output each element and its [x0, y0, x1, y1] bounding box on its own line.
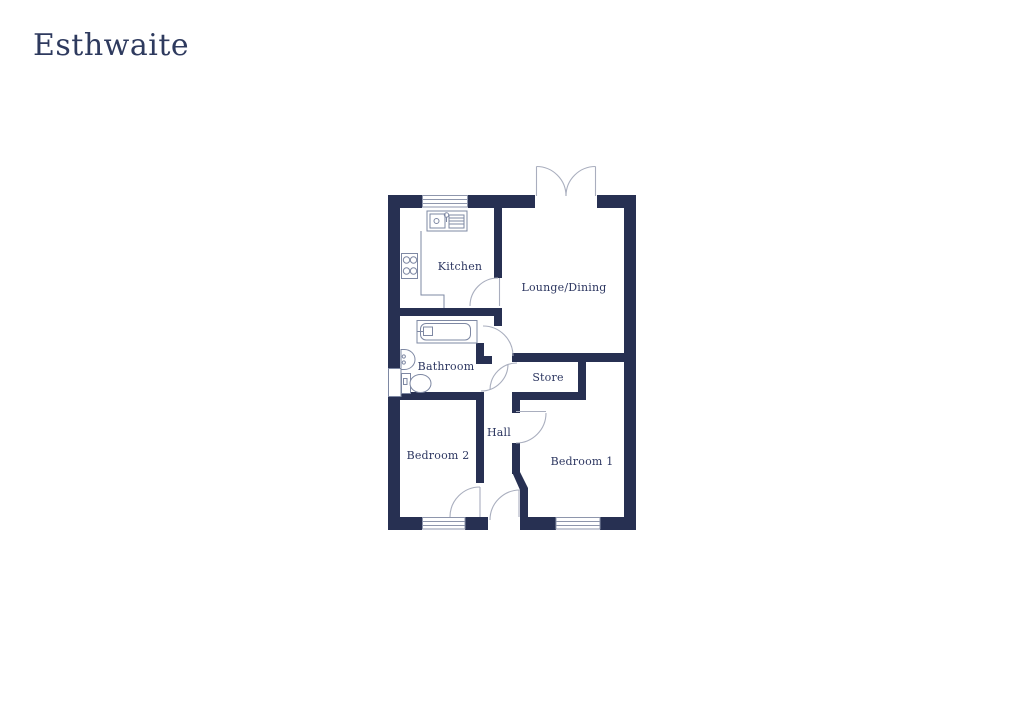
wall-segment [476, 400, 484, 483]
bedroom2-door [450, 487, 480, 517]
wall-segment [512, 353, 624, 362]
front-door [490, 490, 520, 520]
wall-segment [400, 308, 502, 316]
door-swing-arc [483, 326, 513, 356]
wall-segment [494, 308, 502, 326]
wall-segment [520, 517, 556, 530]
wall-segment [465, 517, 488, 530]
wall-segment [494, 208, 502, 278]
service-notch [389, 369, 402, 397]
wall-segment [512, 392, 586, 400]
room-label-bedroom-1: Bedroom 1 [551, 455, 614, 468]
hob-icon [402, 254, 418, 279]
store-door [490, 363, 517, 390]
lounge-door [483, 326, 513, 356]
bedroom1-door [516, 412, 546, 444]
wall-segment [468, 195, 535, 208]
door-swing-arc [566, 167, 596, 197]
door-swing-arc [537, 167, 567, 197]
room-label-lounge-dining: Lounge/Dining [521, 281, 606, 294]
room-label-store: Store [532, 371, 563, 384]
room-label-hall: Hall [487, 426, 511, 439]
door-swing-arc [470, 278, 498, 306]
wall-segment [388, 195, 400, 368]
bedroom1-window [556, 518, 600, 530]
kitchen-door [470, 278, 500, 306]
door-swing-arc [450, 487, 480, 517]
wall-segment [600, 517, 636, 530]
kitchen-window [423, 196, 468, 208]
floorplan-canvas: Kitchen Lounge/Dining Bathroom Store Hal… [0, 0, 1024, 724]
wall-segment [624, 195, 636, 530]
page: Esthwaite [0, 0, 1024, 724]
wall-segment [400, 392, 484, 400]
bath-icon [417, 321, 477, 344]
bathroom-door [481, 364, 508, 391]
room-label-bedroom-2: Bedroom 2 [407, 449, 470, 462]
wall-segment [476, 356, 492, 364]
door-swing-arc [481, 364, 508, 391]
basin-icon [401, 350, 415, 370]
door-swing-arc [490, 363, 517, 390]
wall-segment [512, 472, 528, 517]
room-label-bathroom: Bathroom [418, 360, 475, 373]
wall-segment [388, 396, 400, 530]
wall-segment [512, 392, 520, 413]
door-swing-arc [516, 413, 546, 443]
bedroom2-window [423, 518, 466, 530]
room-label-kitchen: Kitchen [438, 260, 482, 273]
french-doors-lounge [537, 167, 596, 197]
wall-segment [512, 443, 520, 474]
wall-segment [388, 517, 422, 530]
door-swing-arc [490, 490, 520, 520]
kitchen-sink-icon [427, 211, 467, 231]
